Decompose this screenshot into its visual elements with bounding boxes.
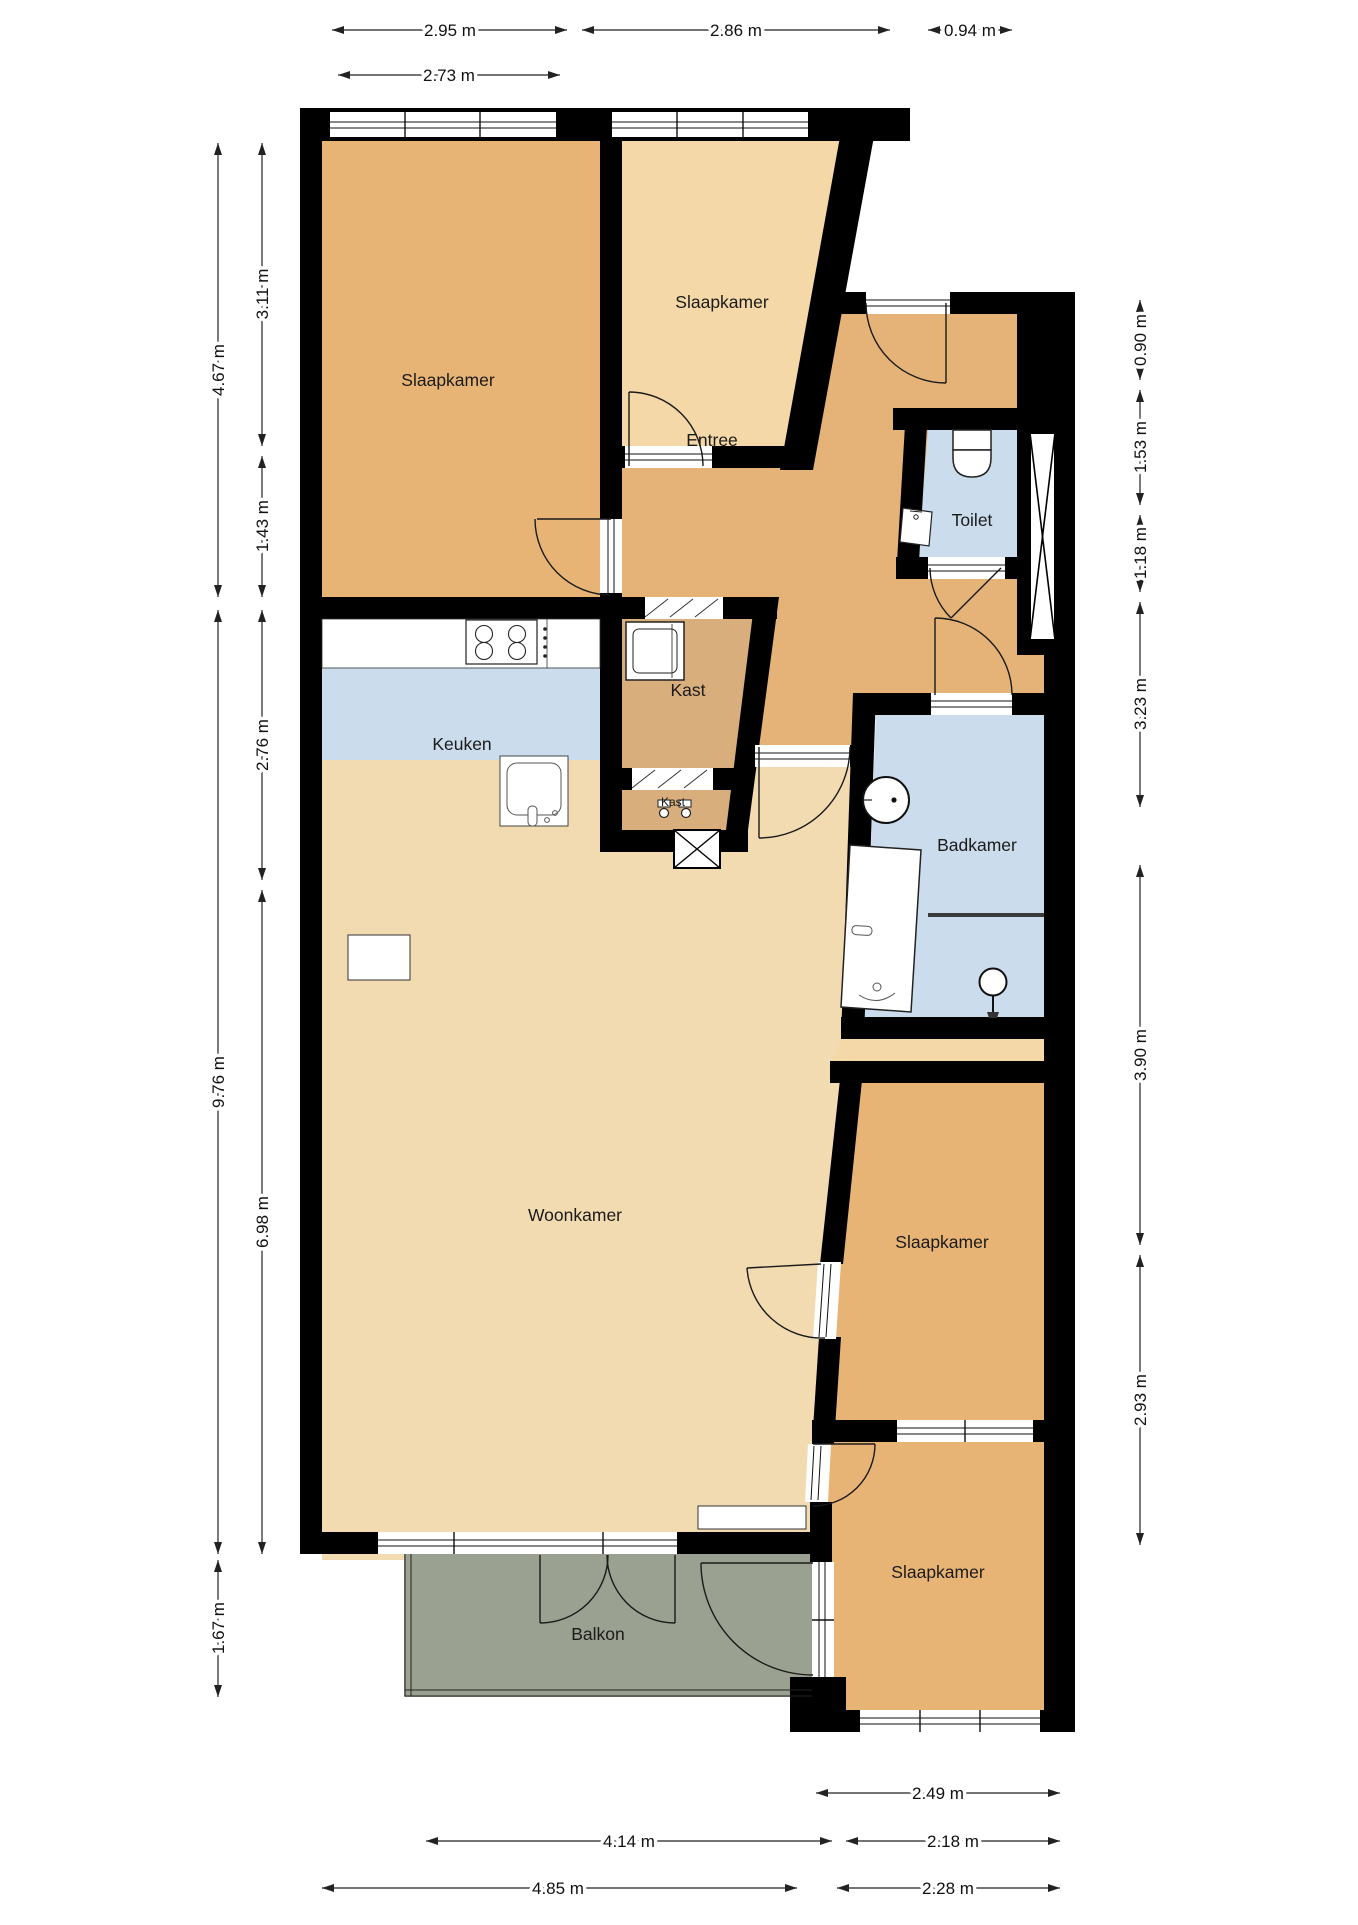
label-slaapkamer-tm: Slaapkamer — [675, 292, 769, 312]
hatch-kast-top — [645, 597, 723, 619]
strip-floor — [831, 1039, 1044, 1061]
label-balkon: Balkon — [571, 1624, 625, 1644]
toilet-icon — [953, 430, 991, 477]
svg-text:1.53 m: 1.53 m — [1131, 421, 1150, 473]
svg-text:1.18 m: 1.18 m — [1131, 527, 1150, 579]
toilet-sink-icon — [900, 508, 932, 546]
shaft-right — [1030, 433, 1055, 640]
window-bedroom-br — [860, 1710, 1040, 1732]
svg-text:2.86 m: 2.86 m — [710, 21, 762, 40]
stove-icon — [466, 620, 547, 664]
dim-top-273: 2.73 m — [338, 66, 560, 85]
floorplan-drawing: Slaapkamer Slaapkamer Entree Toilet Kast… — [0, 0, 1358, 1920]
radiator-left — [348, 935, 410, 980]
svg-text:6.98 m: 6.98 m — [253, 1196, 272, 1248]
wall-left — [300, 108, 322, 1554]
bathroom-sink-icon — [863, 777, 909, 823]
svg-text:2.76 m: 2.76 m — [253, 719, 272, 771]
svg-text:4.85 m: 4.85 m — [532, 1879, 584, 1898]
opening-badkamer — [931, 693, 1012, 715]
label-woonkamer: Woonkamer — [528, 1205, 622, 1225]
dim-left-976: 9.76 m — [209, 610, 228, 1554]
shaft-hall — [674, 830, 720, 868]
wall-badkamer-bottom — [841, 1017, 1075, 1039]
window-bedroom-divider — [897, 1420, 1033, 1442]
dim-left-167: 1.67 m — [209, 1560, 228, 1697]
svg-text:2.28 m: 2.28 m — [922, 1879, 974, 1898]
label-slaapkamer-tl: Slaapkamer — [401, 370, 495, 390]
label-keuken: Keuken — [432, 734, 491, 754]
wall-bedroom-br-west — [810, 1502, 832, 1562]
radiator-bottom — [698, 1506, 806, 1529]
window-woonkamer — [378, 1532, 530, 1554]
svg-text:1.43 m: 1.43 m — [253, 500, 272, 552]
label-slaapkamer-mr: Slaapkamer — [895, 1232, 989, 1252]
dim-bottom-249: 2.49 m — [816, 1784, 1060, 1803]
dim-left-698: 6.98 m — [253, 890, 272, 1554]
dim-left-467: 4.67 m — [209, 143, 228, 597]
dim-bottom-218: 2.18 m — [846, 1832, 1060, 1851]
svg-text:0.90 m: 0.90 m — [1131, 314, 1150, 366]
svg-text:3.90 m: 3.90 m — [1131, 1029, 1150, 1081]
window-bedroom-tm — [612, 112, 808, 137]
svg-text:4.14 m: 4.14 m — [603, 1832, 655, 1851]
dim-top-295: 2.95 m — [332, 21, 567, 40]
hatch-kast-bottom — [632, 768, 713, 790]
dim-left-276: 2.76 m — [253, 610, 272, 880]
svg-text:2.18 m: 2.18 m — [927, 1832, 979, 1851]
wall-bedroom-tl-bottom — [322, 597, 600, 619]
wall-strip-bottom — [830, 1061, 1075, 1083]
window-bedroom-tl — [330, 112, 556, 137]
svg-text:0.94 m: 0.94 m — [944, 21, 996, 40]
floorplan-page: Slaapkamer Slaapkamer Entree Toilet Kast… — [0, 0, 1358, 1920]
svg-text:2.95 m: 2.95 m — [424, 21, 476, 40]
svg-text:4.67 m: 4.67 m — [209, 344, 228, 396]
dim-bottom-485: 4.85 m — [322, 1879, 797, 1898]
svg-text:2.49 m: 2.49 m — [912, 1784, 964, 1803]
dim-right-153: 1.53 m — [1131, 390, 1150, 505]
exterior-notch — [845, 135, 1017, 292]
dim-right-293: 2.93 m — [1131, 1255, 1150, 1545]
dim-right-323: 3.23 m — [1131, 602, 1150, 807]
svg-text:2.93 m: 2.93 m — [1131, 1374, 1150, 1426]
label-entree: Entree — [686, 430, 738, 450]
svg-text:1.67 m: 1.67 m — [209, 1602, 228, 1654]
dim-top-094: 0.94 m — [928, 21, 1012, 40]
dim-right-118: 1.18 m — [1131, 515, 1150, 592]
svg-text:2.73 m: 2.73 m — [423, 66, 475, 85]
label-kast-meter: Kast — [661, 795, 686, 809]
kitchen-sink-icon — [500, 756, 568, 826]
opening-hall-woonkamer — [755, 745, 850, 767]
dim-left-311: 3.11 m — [253, 143, 272, 446]
dim-bottom-414: 4.14 m — [426, 1832, 832, 1851]
label-kast: Kast — [670, 680, 705, 700]
opening-bedroom-tl — [600, 519, 622, 593]
dim-right-390: 3.90 m — [1131, 865, 1150, 1245]
label-badkamer: Badkamer — [937, 835, 1017, 855]
opening-entrance — [866, 292, 950, 314]
dim-bottom-228: 2.28 m — [837, 1879, 1060, 1898]
french-doors-balkon — [530, 1532, 677, 1554]
opening-bedroom-br — [805, 1444, 831, 1502]
svg-text:3.11 m: 3.11 m — [253, 269, 272, 320]
woonkamer-floor — [322, 693, 868, 1560]
bathtub-icon — [841, 845, 921, 1012]
wall-right — [1044, 655, 1075, 1732]
kitchen-counter — [322, 619, 600, 668]
dim-top-286: 2.86 m — [582, 21, 890, 40]
washing-machine-icon — [626, 622, 684, 680]
wall-kast-left — [600, 619, 622, 852]
window-bedroom-br-balkon — [812, 1562, 834, 1677]
dim-left-143: 1.43 m — [253, 456, 272, 597]
label-slaapkamer-br: Slaapkamer — [891, 1562, 985, 1582]
label-toilet: Toilet — [952, 510, 993, 530]
svg-text:3.23 m: 3.23 m — [1131, 678, 1150, 730]
dim-right-090: 0.90 m — [1131, 300, 1150, 380]
svg-text:9.76 m: 9.76 m — [209, 1056, 228, 1108]
